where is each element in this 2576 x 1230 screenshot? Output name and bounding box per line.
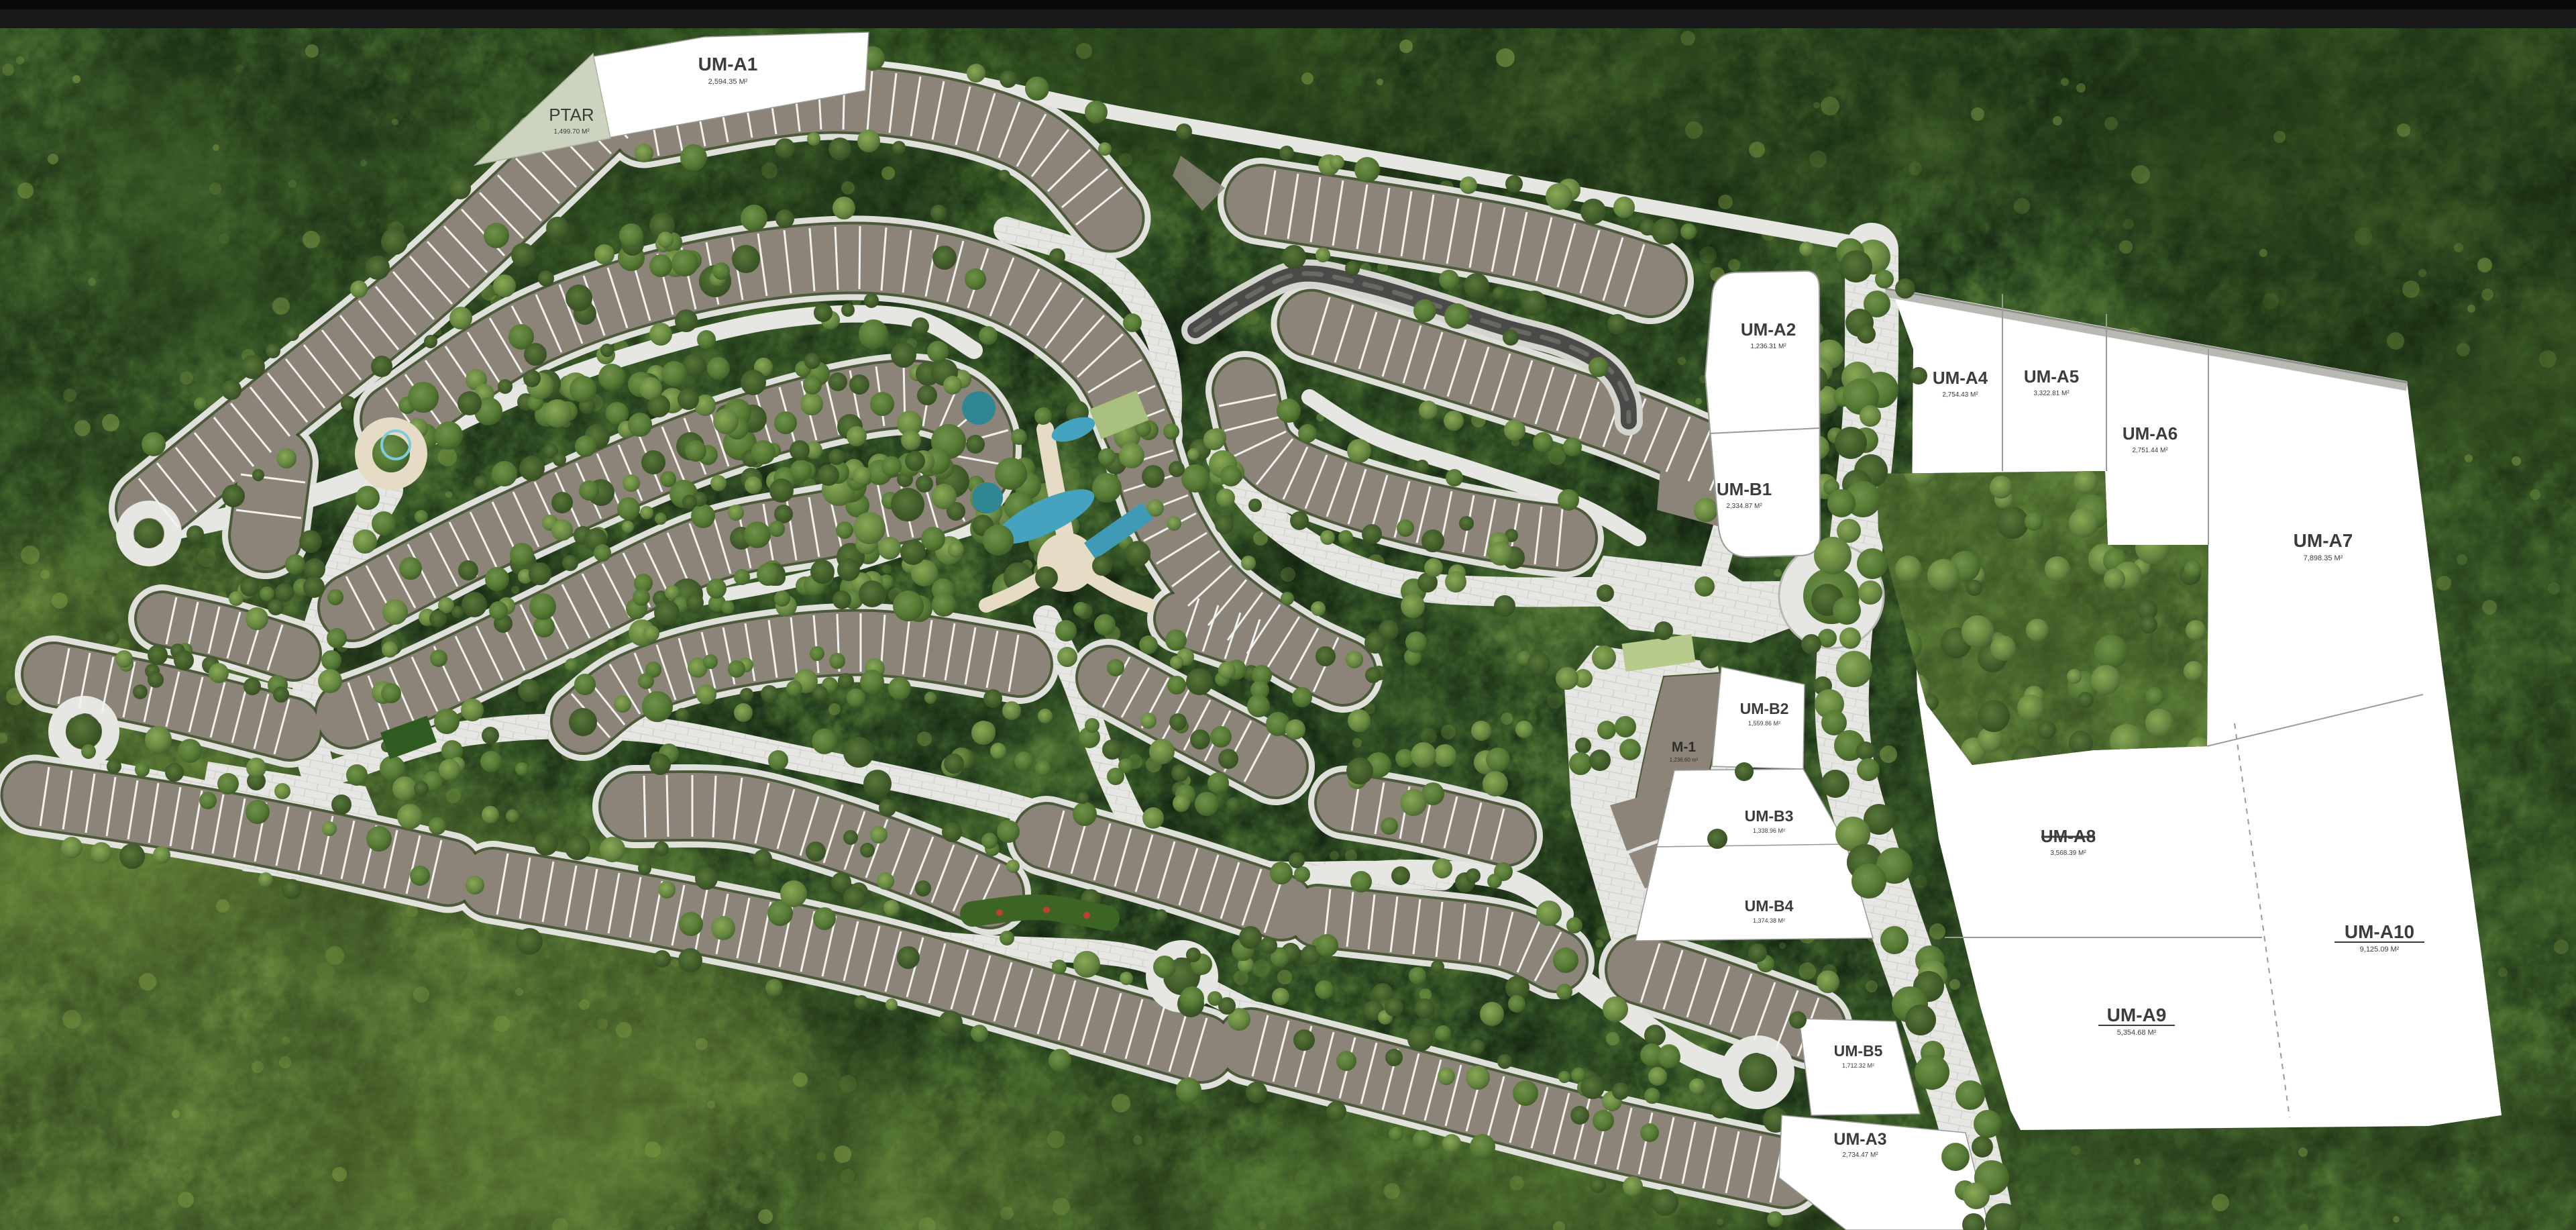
svg-text:UM-A5: UM-A5	[2024, 366, 2079, 387]
svg-text:5,354.68 M²: 5,354.68 M²	[2117, 1029, 2157, 1037]
svg-text:3,322.81 M²: 3,322.81 M²	[2033, 390, 2070, 397]
svg-text:2,754.43 M²: 2,754.43 M²	[1942, 391, 1978, 399]
svg-text:UM-B4: UM-B4	[1745, 897, 1794, 915]
svg-text:UM-A1: UM-A1	[698, 54, 758, 74]
svg-text:UM-A6: UM-A6	[2123, 423, 2178, 444]
svg-text:1,236.31 M²: 1,236.31 M²	[1750, 343, 1786, 350]
svg-text:1,712.32 M²: 1,712.32 M²	[1842, 1062, 1874, 1069]
svg-text:1,559.86 M²: 1,559.86 M²	[1748, 720, 1780, 727]
svg-text:2,734.47 M²: 2,734.47 M²	[1842, 1151, 1878, 1159]
svg-text:1,338.96 M²: 1,338.96 M²	[1753, 827, 1785, 834]
svg-text:1,374.38 M²: 1,374.38 M²	[1753, 917, 1785, 924]
svg-text:9,125.09 M²: 9,125.09 M²	[2360, 945, 2400, 954]
svg-text:3,568.39 M²: 3,568.39 M²	[2050, 850, 2086, 857]
svg-text:1,499.70 M²: 1,499.70 M²	[553, 128, 590, 136]
svg-text:UM-B1: UM-B1	[1717, 479, 1772, 499]
svg-text:2,334.87 M²: 2,334.87 M²	[1726, 503, 1762, 510]
svg-text:PTAR: PTAR	[549, 105, 594, 125]
svg-text:7,898.35 M²: 7,898.35 M²	[2304, 554, 2343, 562]
svg-text:UM-B5: UM-B5	[1834, 1042, 1883, 1060]
svg-text:UM-A7: UM-A7	[2294, 530, 2353, 551]
svg-text:UM-B3: UM-B3	[1745, 807, 1794, 825]
svg-text:1,236.60 m²: 1,236.60 m²	[1670, 757, 1699, 763]
svg-text:2,594.35 M²: 2,594.35 M²	[708, 78, 748, 86]
svg-text:UM-B2: UM-B2	[1740, 700, 1789, 717]
svg-text:UM-A2: UM-A2	[1741, 319, 1796, 340]
svg-text:UM-A9: UM-A9	[2107, 1005, 2167, 1025]
svg-text:M-1: M-1	[1672, 739, 1696, 755]
svg-text:UM-A10: UM-A10	[2345, 921, 2414, 942]
svg-text:2,751.44 M²: 2,751.44 M²	[2132, 447, 2168, 454]
svg-text:UM-A4: UM-A4	[1933, 368, 1988, 388]
svg-text:UM-A3: UM-A3	[1833, 1130, 1886, 1149]
